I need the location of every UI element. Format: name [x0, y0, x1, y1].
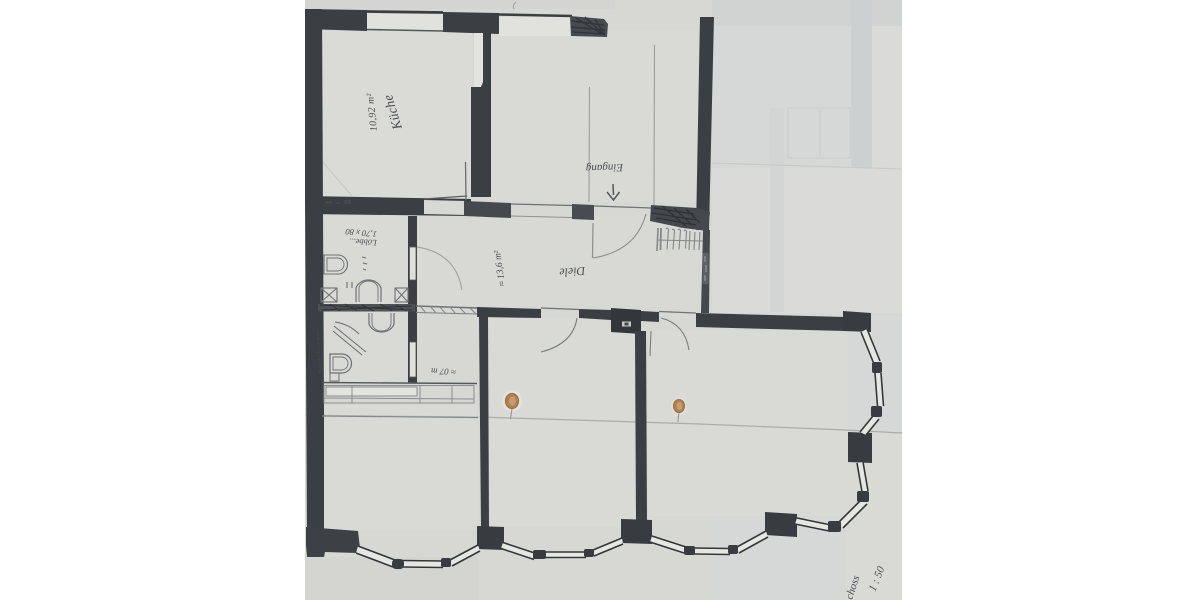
svg-text:Diele: Diele	[558, 264, 587, 280]
svg-text:Löbbe...: Löbbe...	[349, 237, 378, 248]
svg-text:Eingang: Eingang	[585, 161, 624, 174]
svg-text:≈ 07 m: ≈ 07 m	[430, 366, 456, 377]
